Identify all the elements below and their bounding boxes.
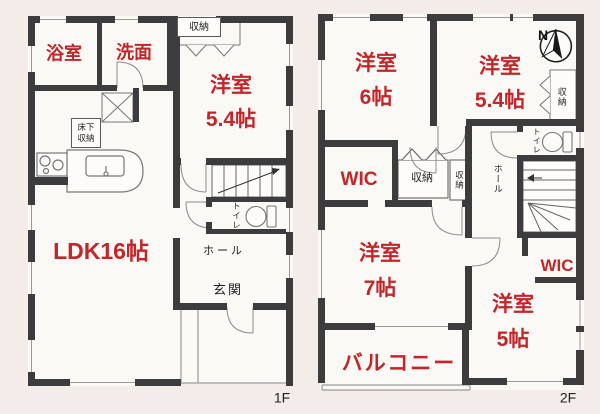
balcony-label: バルコニー: [342, 353, 457, 375]
room-name: 洋室: [475, 50, 525, 84]
room-size: 5.4帖: [206, 103, 256, 137]
closet-top-label-1f: 収納: [177, 17, 221, 37]
stove: [37, 153, 67, 176]
toilet-label-1f: トイレ: [232, 202, 241, 231]
room-label-bath: 浴室: [46, 45, 82, 64]
room-name: 洋室: [355, 47, 397, 81]
room-name: 洋室: [492, 287, 534, 322]
toilet-fixture-1f: [246, 206, 276, 227]
wic-right-label: WIC: [540, 257, 573, 275]
room-label-washroom: 洗面: [116, 44, 152, 63]
room-size: 5帖: [492, 322, 534, 357]
toilet-fixture-2f: [543, 132, 573, 152]
hall-label-1f: ホール: [203, 246, 245, 258]
underfloor-line1: 床下: [72, 122, 100, 133]
compass-north-label: N: [538, 27, 548, 43]
hall-label-2f: ホール: [492, 164, 501, 194]
floor-label-1f: 1F: [274, 391, 290, 406]
kitchen-counter: [67, 150, 143, 192]
underfloor-storage-box: 床下 収納: [71, 118, 101, 148]
floor-label-2f: 2F: [560, 391, 576, 406]
room-size: 7帖: [359, 271, 401, 306]
room-name: 洋室: [206, 69, 256, 103]
underfloor-line2: 収納: [72, 133, 100, 144]
room-label-ldk: LDK16帖: [53, 239, 149, 263]
closet-right-label-2f: 収納: [556, 87, 565, 107]
room-label-western-54-2f: 洋室 5.4帖: [475, 50, 525, 118]
room-label-western-54-1f: 洋室 5.4帖: [206, 69, 256, 137]
closet-mid-label: 収納: [411, 173, 433, 185]
stairs-2f: [523, 161, 576, 234]
wic-left-label: WIC: [341, 170, 378, 190]
toilet-label-2f: トイレ: [532, 128, 540, 155]
floorplan-image: N 浴室 洗面 収納 洋室 5.4帖 床下 収納 LDK16帖 トイレ ホール …: [0, 0, 600, 414]
stairs-1f: [212, 165, 286, 197]
room-size: 5.4帖: [475, 84, 525, 118]
room-label-western-5: 洋室 5帖: [492, 287, 534, 357]
room-name: 洋室: [359, 236, 401, 271]
entrance-label: 玄関: [213, 283, 243, 297]
room-label-western-7: 洋室 7帖: [359, 236, 401, 306]
room-label-western-6: 洋室 6帖: [355, 47, 397, 115]
room-size: 6帖: [355, 81, 397, 115]
closet-mid-small-label: 収納: [455, 171, 464, 190]
